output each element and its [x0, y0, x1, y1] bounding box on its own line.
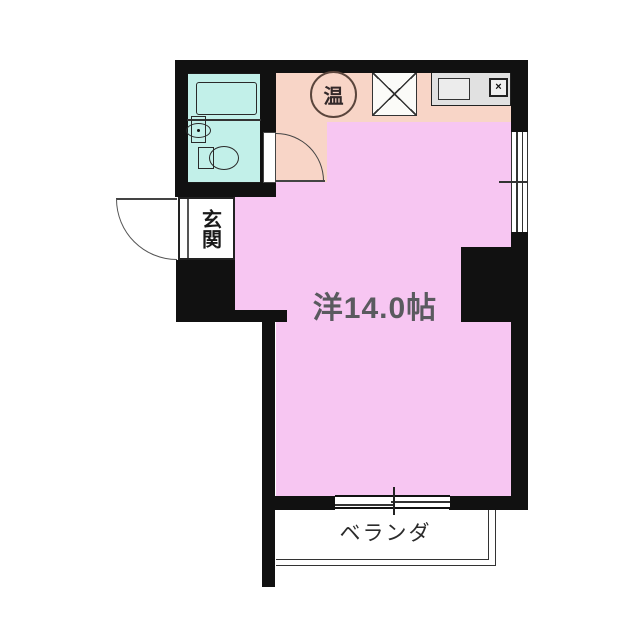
- veranda-label: ベランダ: [276, 509, 495, 547]
- toilet-bowl-icon: [209, 146, 239, 170]
- kitchen-sink-icon: [438, 78, 470, 100]
- bathroom-door-jamb: [263, 132, 276, 183]
- wall-bottom-left: [262, 496, 335, 510]
- entrance-door-arc-icon: [116, 199, 177, 260]
- bathtub-icon: [196, 82, 257, 115]
- washbasin-drain-dot: [197, 129, 200, 132]
- water-heater-icon: 温: [310, 71, 357, 118]
- region-main-room-left-strip: [235, 197, 276, 320]
- bathroom-door-panel: [276, 180, 325, 182]
- sliding-door-panel-line: [391, 501, 450, 503]
- room-label: 洋14.0帖: [275, 283, 475, 319]
- stove-burner-glyph: ×: [495, 82, 501, 93]
- water-heater-label: 温: [324, 80, 344, 109]
- sliding-door-panel-line: [335, 504, 393, 506]
- window-center-tick: [499, 181, 528, 183]
- veranda: ベランダ: [276, 509, 496, 566]
- sliding-door-center-tick: [393, 487, 395, 515]
- washing-machine-pan-icon: [372, 72, 417, 116]
- stove-icon: ×: [489, 78, 508, 97]
- wall-left-lower: [262, 310, 275, 587]
- wall-top: [175, 60, 528, 73]
- entrance-label: 玄関: [199, 209, 221, 249]
- entrance-area: 玄関: [178, 197, 235, 260]
- entrance-step-line: [187, 199, 189, 258]
- floor-plan: ベランダ 玄関 温 ×: [0, 0, 640, 640]
